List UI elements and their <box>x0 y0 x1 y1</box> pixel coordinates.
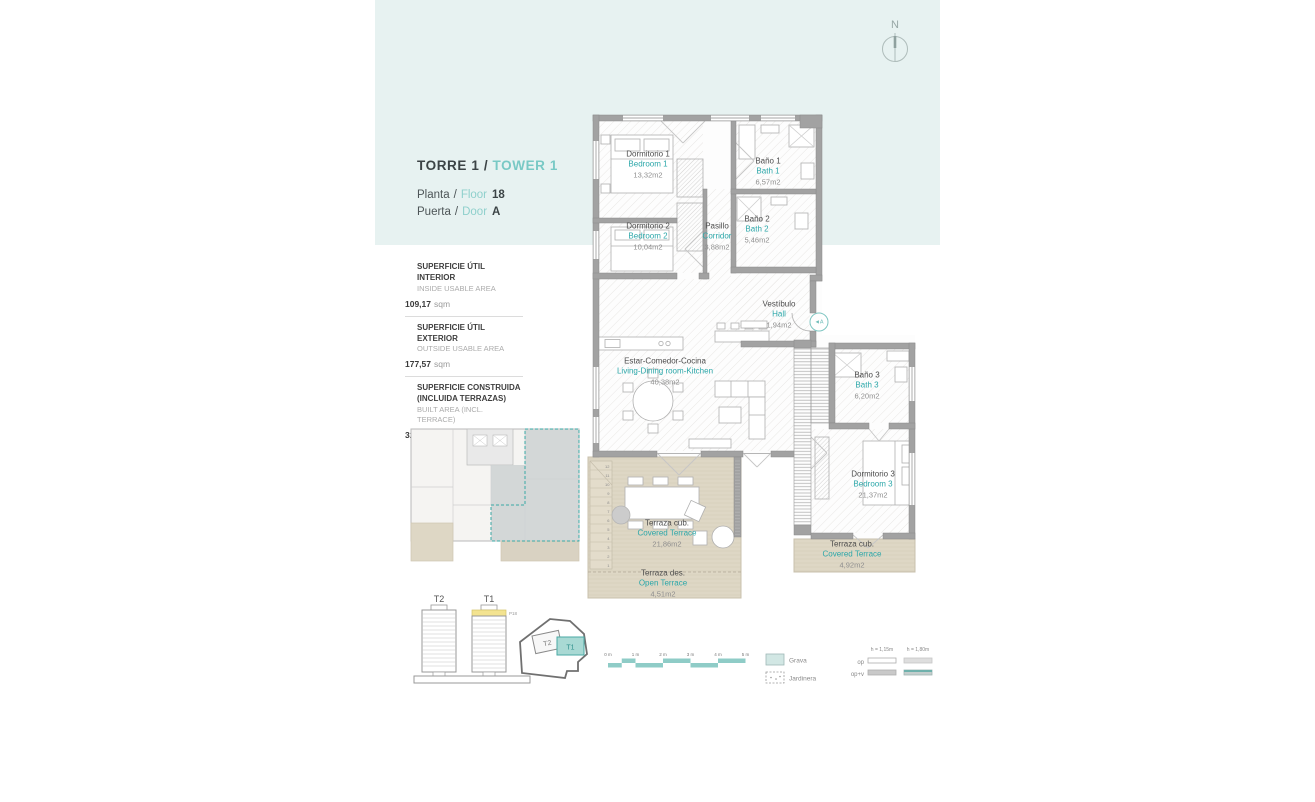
room-label-covered-terrace: Terraza cub.Covered Terrace21,86m2 <box>638 519 697 550</box>
room-label-living: Estar-Comedor-CocinaLiving-Dining room-K… <box>617 357 713 388</box>
svg-text:10: 10 <box>605 482 610 487</box>
door-row: Puerta/DoorA <box>417 206 558 218</box>
svg-text:1 m: 1 m <box>632 652 640 657</box>
room-label-bedroom-1: Dormitorio 1Bedroom 113,32m2 <box>626 150 670 181</box>
legend-materials: Grava Jardinera <box>764 648 834 690</box>
tower-t1-label: T1 <box>484 594 495 604</box>
door-value: A <box>487 206 500 218</box>
svg-text:0 m: 0 m <box>604 652 612 657</box>
svg-text:h = 1,15m: h = 1,15m <box>871 647 893 653</box>
room-label-bedroom-3: Dormitorio 3Bedroom 321,37m2 <box>851 470 895 501</box>
page-title: TORRE 1 / TOWER 1 <box>417 158 558 173</box>
room-label-hall: VestíbuloHall1,94m2 <box>763 300 796 331</box>
plant-pot-icon <box>612 506 630 524</box>
north-arrow-icon: N <box>874 16 920 68</box>
svg-text:Jardinera: Jardinera <box>789 676 816 683</box>
scale-bar: 0 m 1 m 2 m 3 m 4 m 5 m <box>604 650 754 676</box>
room-label-bath-3: Baño 3Bath 36,20m2 <box>854 371 879 402</box>
floor-plan: 12 11 10 9 8 7 6 5 4 3 2 1 Dormitorio 1B… <box>565 85 940 600</box>
area-interior: SUPERFICIE ÚTIL INTERIOR INSIDE USABLE A… <box>405 256 523 316</box>
room-label-bath-2: Baño 2Bath 25,46m2 <box>744 215 769 246</box>
title-en: TOWER 1 <box>493 158 558 173</box>
entry-door-badge: ◄A <box>810 313 829 332</box>
svg-text:5 m: 5 m <box>742 652 750 657</box>
svg-text:3 m: 3 m <box>687 652 695 657</box>
svg-text:12: 12 <box>605 464 610 469</box>
area-exterior: SUPERFICIE ÚTIL EXTERIOR OUTSIDE USABLE … <box>405 316 523 377</box>
brochure-page: N TORRE 1 / TOWER 1 Planta/Floor18 Puert… <box>0 0 1315 802</box>
title-es: TORRE 1 / <box>417 158 488 173</box>
legend-heights: h = 1,15m h = 1,80m op op+v <box>830 643 940 685</box>
svg-text:op+v: op+v <box>851 672 864 678</box>
key-plan <box>405 425 585 565</box>
svg-text:N: N <box>891 19 899 31</box>
floor-row: Planta/Floor18 <box>417 189 558 201</box>
room-label-corridor: PasilloCorridor3,88m2 <box>703 222 732 253</box>
site-plan: T2 T1 <box>510 612 600 690</box>
floor-value: 18 <box>487 189 505 201</box>
svg-text:T1: T1 <box>566 645 574 652</box>
svg-text:Grava: Grava <box>789 658 807 665</box>
site-tower-t1: T1 <box>557 637 584 655</box>
svg-text:2 m: 2 m <box>659 652 667 657</box>
grava-swatch <box>766 654 784 665</box>
room-label-open-terrace: Terraza des.Open Terrace4,51m2 <box>639 569 687 600</box>
svg-text:4 m: 4 m <box>714 652 722 657</box>
tower-t2-label: T2 <box>434 594 445 604</box>
room-label-bedroom-2: Dormitorio 2Bedroom 210,04m2 <box>626 222 670 253</box>
title-block: TORRE 1 / TOWER 1 Planta/Floor18 Puerta/… <box>417 158 558 218</box>
room-label-covered-terrace-3: Terraza cub.Covered Terrace4,92m2 <box>823 540 882 571</box>
svg-text:op: op <box>857 660 864 666</box>
highlighted-floor-18 <box>472 610 506 616</box>
jardinera-swatch <box>766 672 784 683</box>
svg-text:h = 1,80m: h = 1,80m <box>907 647 929 653</box>
room-label-bath-1: Baño 1Bath 16,57m2 <box>755 157 780 188</box>
surface-areas: SUPERFICIE ÚTIL INTERIOR INSIDE USABLE A… <box>405 256 523 447</box>
floor-plan-drawing: 12 11 10 9 8 7 6 5 4 3 2 1 <box>565 85 940 600</box>
